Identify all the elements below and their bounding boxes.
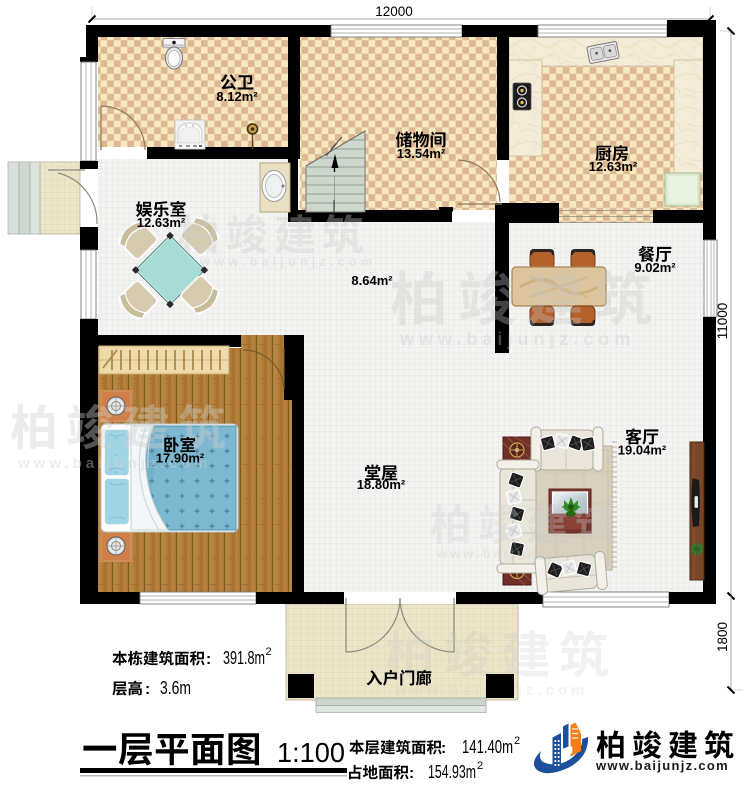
svg-text:18.80m²: 18.80m² — [357, 477, 406, 492]
svg-text:19.04m²: 19.04m² — [618, 443, 667, 458]
svg-text:8.12m²: 8.12m² — [216, 89, 258, 104]
svg-text:3.6m: 3.6m — [160, 678, 191, 698]
svg-text:154.93m: 154.93m — [428, 762, 476, 782]
svg-text:141.40m: 141.40m — [462, 737, 513, 757]
svg-text:9.02m²: 9.02m² — [634, 260, 676, 275]
svg-text:17.90m²: 17.90m² — [156, 451, 205, 466]
svg-text:1:100: 1:100 — [277, 737, 345, 768]
svg-text:12000: 12000 — [375, 4, 413, 19]
svg-text:12.63m²: 12.63m² — [137, 215, 186, 230]
svg-text:2: 2 — [514, 735, 520, 747]
svg-text:11000: 11000 — [715, 303, 730, 340]
svg-text::: : — [206, 651, 211, 668]
svg-text:www.baijunjz.com: www.baijunjz.com — [399, 329, 635, 349]
svg-text:8.64m²: 8.64m² — [351, 273, 393, 288]
svg-text:www.baijunjz.com: www.baijunjz.com — [436, 546, 597, 561]
svg-text:2: 2 — [477, 760, 483, 772]
svg-text:www.baijunjz.com: www.baijunjz.com — [199, 254, 376, 269]
svg-text:391.8m: 391.8m — [223, 648, 265, 668]
svg-text::: : — [441, 740, 446, 757]
svg-text:13.54m²: 13.54m² — [397, 146, 446, 161]
svg-text::: : — [145, 681, 150, 698]
svg-text::: : — [409, 765, 414, 782]
svg-text:2: 2 — [266, 646, 272, 658]
svg-text:1800: 1800 — [715, 622, 730, 652]
svg-text:12.63m²: 12.63m² — [589, 159, 638, 174]
svg-text:www.baijunjz.com: www.baijunjz.com — [595, 758, 729, 773]
